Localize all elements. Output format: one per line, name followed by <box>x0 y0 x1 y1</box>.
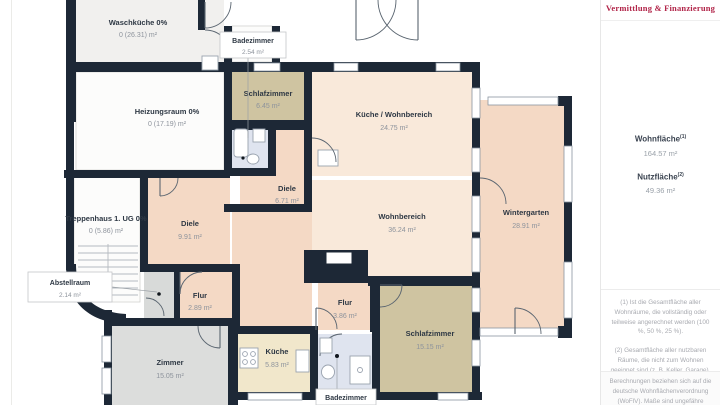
area-waschkueche: 0 (26.31) m² <box>119 32 158 39</box>
label-abstellraum: Abstellraum <box>50 280 90 287</box>
footnote-1: (1) Ist die Gesamtfläche aller Wohnräume… <box>609 298 712 337</box>
label-diele: Diele <box>181 219 199 228</box>
area-flur-klein: 2.89 m² <box>188 305 212 312</box>
label-kueche: Küche <box>266 347 289 356</box>
label-heizungsraum: Heizungsraum 0% <box>135 107 200 116</box>
area-zimmer: 15.05 m² <box>156 373 184 380</box>
area-kueche-wohnbereich: 24.75 m² <box>380 125 408 132</box>
area-kueche: 5.83 m² <box>265 362 289 369</box>
floorplan-page: Waschküche 0% 0 (26.31) m² Heizungsraum … <box>0 0 720 405</box>
corridor-lower <box>240 272 312 326</box>
area-abstellraum: 2.14 m² <box>59 292 82 299</box>
label-badezimmer-eg: Badezimmer <box>325 395 367 402</box>
label-schlafzimmer: Schlafzimmer <box>406 329 455 338</box>
wohnflaeche-label: Wohnfläche(1) <box>601 134 720 144</box>
area-diele-klein: 6.71 m² <box>275 198 299 205</box>
info-sidebar: Vermittlung & Finanzierung Wohnfläche(1)… <box>600 0 720 405</box>
label-waschkueche: Waschküche 0% <box>109 18 168 27</box>
label-treppenhaus: Treppenhaus 1. UG 0% <box>65 214 147 223</box>
area-treppenhaus: 0 (5.86) m² <box>89 228 124 235</box>
label-wintergarten: Wintergarten <box>503 208 550 217</box>
nutzflaeche-footnote-ref: (2) <box>678 172 684 178</box>
area-schlafzimmer: 15.15 m² <box>416 344 444 351</box>
area-wintergarten: 28.91 m² <box>512 223 540 230</box>
disclaimer: Berechnungen beziehen sich auf die deuts… <box>601 371 720 405</box>
brand-tagline: Vermittlung & Finanzierung <box>606 3 715 13</box>
label-badezimmer-og: Badezimmer <box>232 38 274 45</box>
brand-header: Vermittlung & Finanzierung <box>601 0 720 21</box>
wohnflaeche-footnote-ref: (1) <box>680 134 686 140</box>
label-flur: Flur <box>338 298 352 307</box>
corridor-mid <box>232 212 312 272</box>
floor-plan: Waschküche 0% 0 (26.31) m² Heizungsraum … <box>0 0 600 405</box>
label-zimmer: Zimmer <box>156 358 183 367</box>
footnotes: (1) Ist die Gesamtfläche aller Wohnräume… <box>601 289 720 384</box>
wohnflaeche-value: 164.57 m² <box>601 149 720 158</box>
label-wohnbereich: Wohnbereich <box>378 212 426 221</box>
area-metrics: Wohnfläche(1) 164.57 m² Nutzfläche(2) 49… <box>601 120 720 195</box>
area-badezimmer-og: 2.54 m² <box>242 49 265 56</box>
area-diele: 9.91 m² <box>178 234 202 241</box>
nutzflaeche-label: Nutzfläche(2) <box>601 172 720 182</box>
area-wohnbereich: 36.24 m² <box>388 227 416 234</box>
area-heizungsraum: 0 (17.19) m² <box>148 121 187 128</box>
nutzflaeche-value: 49.36 m² <box>601 186 720 195</box>
label-schlafzimmer-klein: Schlafzimmer <box>244 89 293 98</box>
disclaimer-text: Berechnungen beziehen sich auf die deuts… <box>609 377 712 405</box>
label-kueche-wohnbereich: Küche / Wohnbereich <box>356 110 433 119</box>
label-flur-klein: Flur <box>193 291 207 300</box>
area-flur: 3.86 m² <box>333 313 357 320</box>
label-diele-klein: Diele <box>278 184 296 193</box>
area-schlafzimmer-klein: 6.45 m² <box>256 103 280 110</box>
